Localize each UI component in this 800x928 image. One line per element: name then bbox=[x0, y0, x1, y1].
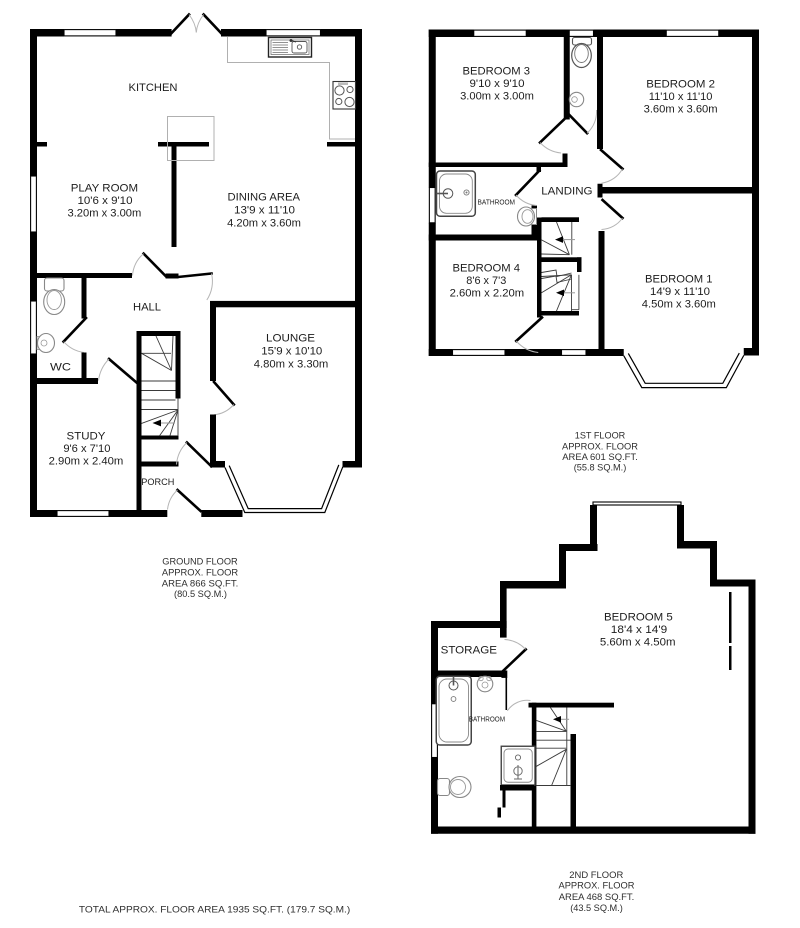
svg-text:WC: WC bbox=[50, 362, 71, 374]
svg-text:9'6 x 7'10: 9'6 x 7'10 bbox=[63, 443, 110, 455]
svg-text:PLAY ROOM: PLAY ROOM bbox=[71, 183, 138, 195]
svg-text:AREA 601 SQ.FT.: AREA 601 SQ.FT. bbox=[562, 452, 638, 462]
svg-text:18'4 x 14'9: 18'4 x 14'9 bbox=[611, 624, 667, 636]
svg-text:9'10 x 9'10: 9'10 x 9'10 bbox=[470, 78, 525, 90]
svg-text:BEDROOM 3: BEDROOM 3 bbox=[463, 66, 531, 78]
svg-text:8'6 x 7'3: 8'6 x 7'3 bbox=[466, 275, 506, 287]
svg-text:3.00m x 3.00m: 3.00m x 3.00m bbox=[460, 91, 534, 103]
svg-text:2.90m x 2.40m: 2.90m x 2.40m bbox=[49, 456, 124, 468]
svg-text:BEDROOM 1: BEDROOM 1 bbox=[645, 274, 713, 286]
svg-text:2ND FLOOR: 2ND FLOOR bbox=[569, 870, 623, 880]
svg-text:11'10 x 11'10: 11'10 x 11'10 bbox=[649, 91, 713, 103]
svg-text:2.60m x 2.20m: 2.60m x 2.20m bbox=[450, 288, 525, 300]
svg-text:BEDROOM 2: BEDROOM 2 bbox=[646, 79, 715, 91]
svg-text:BATHROOM: BATHROOM bbox=[478, 199, 516, 206]
svg-text:(43.5 SQ.M.): (43.5 SQ.M.) bbox=[570, 903, 623, 913]
svg-text:4.50m x 3.60m: 4.50m x 3.60m bbox=[642, 299, 716, 311]
svg-text:BEDROOM 4: BEDROOM 4 bbox=[453, 263, 521, 275]
svg-text:13'9 x 11'10: 13'9 x 11'10 bbox=[234, 205, 295, 217]
svg-text:3.20m x 3.00m: 3.20m x 3.00m bbox=[68, 208, 142, 220]
svg-text:5.60m x 4.50m: 5.60m x 4.50m bbox=[600, 637, 676, 649]
svg-text:HALL: HALL bbox=[133, 302, 161, 314]
svg-text:(55.8 SQ.M.): (55.8 SQ.M.) bbox=[574, 462, 627, 472]
svg-text:3.60m x 3.60m: 3.60m x 3.60m bbox=[644, 104, 718, 116]
svg-text:AREA 866 SQ.FT.: AREA 866 SQ.FT. bbox=[162, 578, 239, 588]
svg-text:10'6 x 9'10: 10'6 x 9'10 bbox=[78, 195, 133, 207]
svg-text:APPROX. FLOOR: APPROX. FLOOR bbox=[562, 441, 638, 451]
svg-text:GROUND FLOOR: GROUND FLOOR bbox=[162, 557, 238, 567]
svg-text:KITCHEN: KITCHEN bbox=[129, 82, 178, 94]
svg-text:LOUNGE: LOUNGE bbox=[266, 333, 315, 345]
svg-text:DINING AREA: DINING AREA bbox=[228, 192, 301, 204]
svg-text:4.80m x 3.30m: 4.80m x 3.30m bbox=[254, 359, 329, 371]
svg-text:STUDY: STUDY bbox=[67, 431, 106, 443]
svg-text:APPROX. FLOOR: APPROX. FLOOR bbox=[162, 568, 239, 578]
svg-text:BATHROOM: BATHROOM bbox=[469, 717, 505, 724]
svg-text:BEDROOM 5: BEDROOM 5 bbox=[604, 612, 673, 624]
svg-text:APPROX. FLOOR: APPROX. FLOOR bbox=[559, 881, 635, 891]
svg-text:1ST FLOOR: 1ST FLOOR bbox=[575, 431, 626, 441]
svg-text:TOTAL APPROX. FLOOR AREA 1935: TOTAL APPROX. FLOOR AREA 1935 SQ.FT. (17… bbox=[79, 905, 350, 915]
svg-text:15'9 x 10'10: 15'9 x 10'10 bbox=[261, 346, 322, 358]
svg-text:(80.5 SQ.M.): (80.5 SQ.M.) bbox=[174, 589, 227, 599]
svg-text:14'9 x 11'10: 14'9 x 11'10 bbox=[650, 286, 710, 298]
svg-text:PORCH: PORCH bbox=[141, 477, 174, 487]
svg-text:AREA 468 SQ.FT.: AREA 468 SQ.FT. bbox=[559, 892, 635, 902]
svg-text:STORAGE: STORAGE bbox=[441, 645, 497, 657]
svg-text:4.20m x 3.60m: 4.20m x 3.60m bbox=[227, 218, 301, 230]
svg-text:LANDING: LANDING bbox=[541, 186, 592, 198]
